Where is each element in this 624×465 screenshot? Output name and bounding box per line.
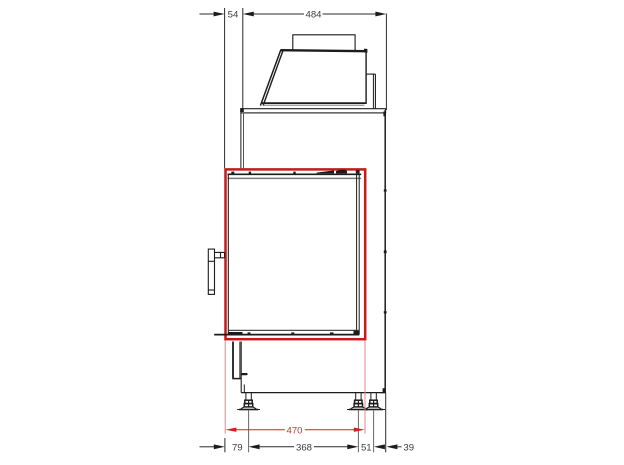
- svg-text:79: 79: [232, 442, 243, 453]
- svg-text:368: 368: [296, 442, 312, 453]
- svg-text:54: 54: [228, 10, 239, 21]
- svg-text:51: 51: [361, 442, 372, 453]
- svg-text:470: 470: [286, 425, 302, 436]
- svg-text:484: 484: [305, 10, 322, 21]
- svg-text:39: 39: [403, 442, 414, 453]
